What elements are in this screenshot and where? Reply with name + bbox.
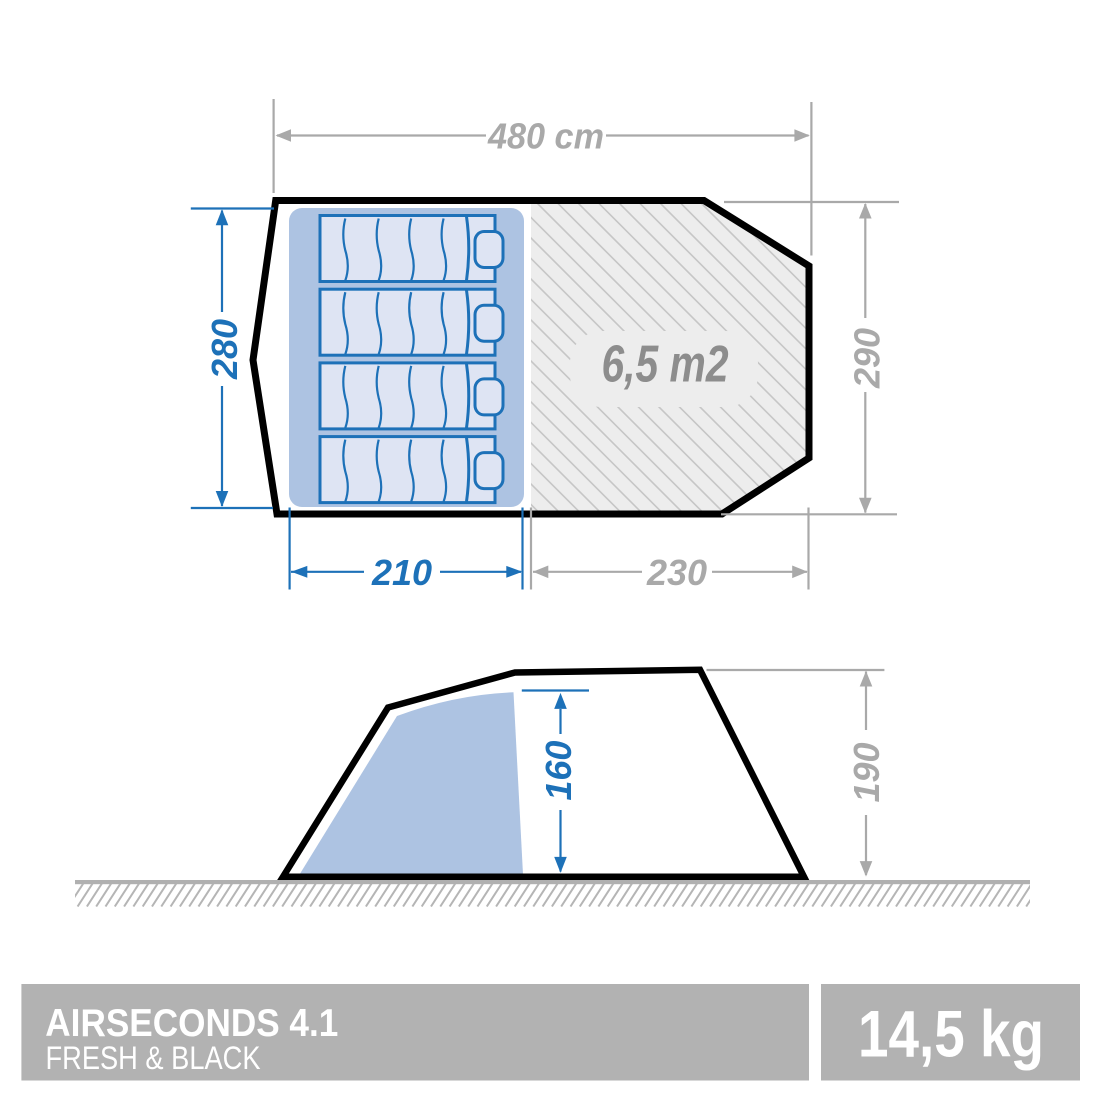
svg-text:FRESH & BLACK: FRESH & BLACK	[46, 1040, 261, 1076]
svg-text:6,5 m2: 6,5 m2	[602, 336, 729, 394]
svg-text:AIRSECONDS 4.1: AIRSECONDS 4.1	[45, 1002, 338, 1045]
svg-text:480 cm: 480 cm	[487, 116, 604, 157]
svg-text:290: 290	[847, 328, 888, 389]
svg-text:280: 280	[204, 319, 245, 380]
svg-text:160: 160	[538, 741, 579, 801]
svg-text:210: 210	[371, 552, 432, 593]
svg-text:230: 230	[646, 552, 707, 593]
svg-text:14,5 kg: 14,5 kg	[858, 997, 1044, 1071]
svg-text:190: 190	[846, 742, 887, 802]
